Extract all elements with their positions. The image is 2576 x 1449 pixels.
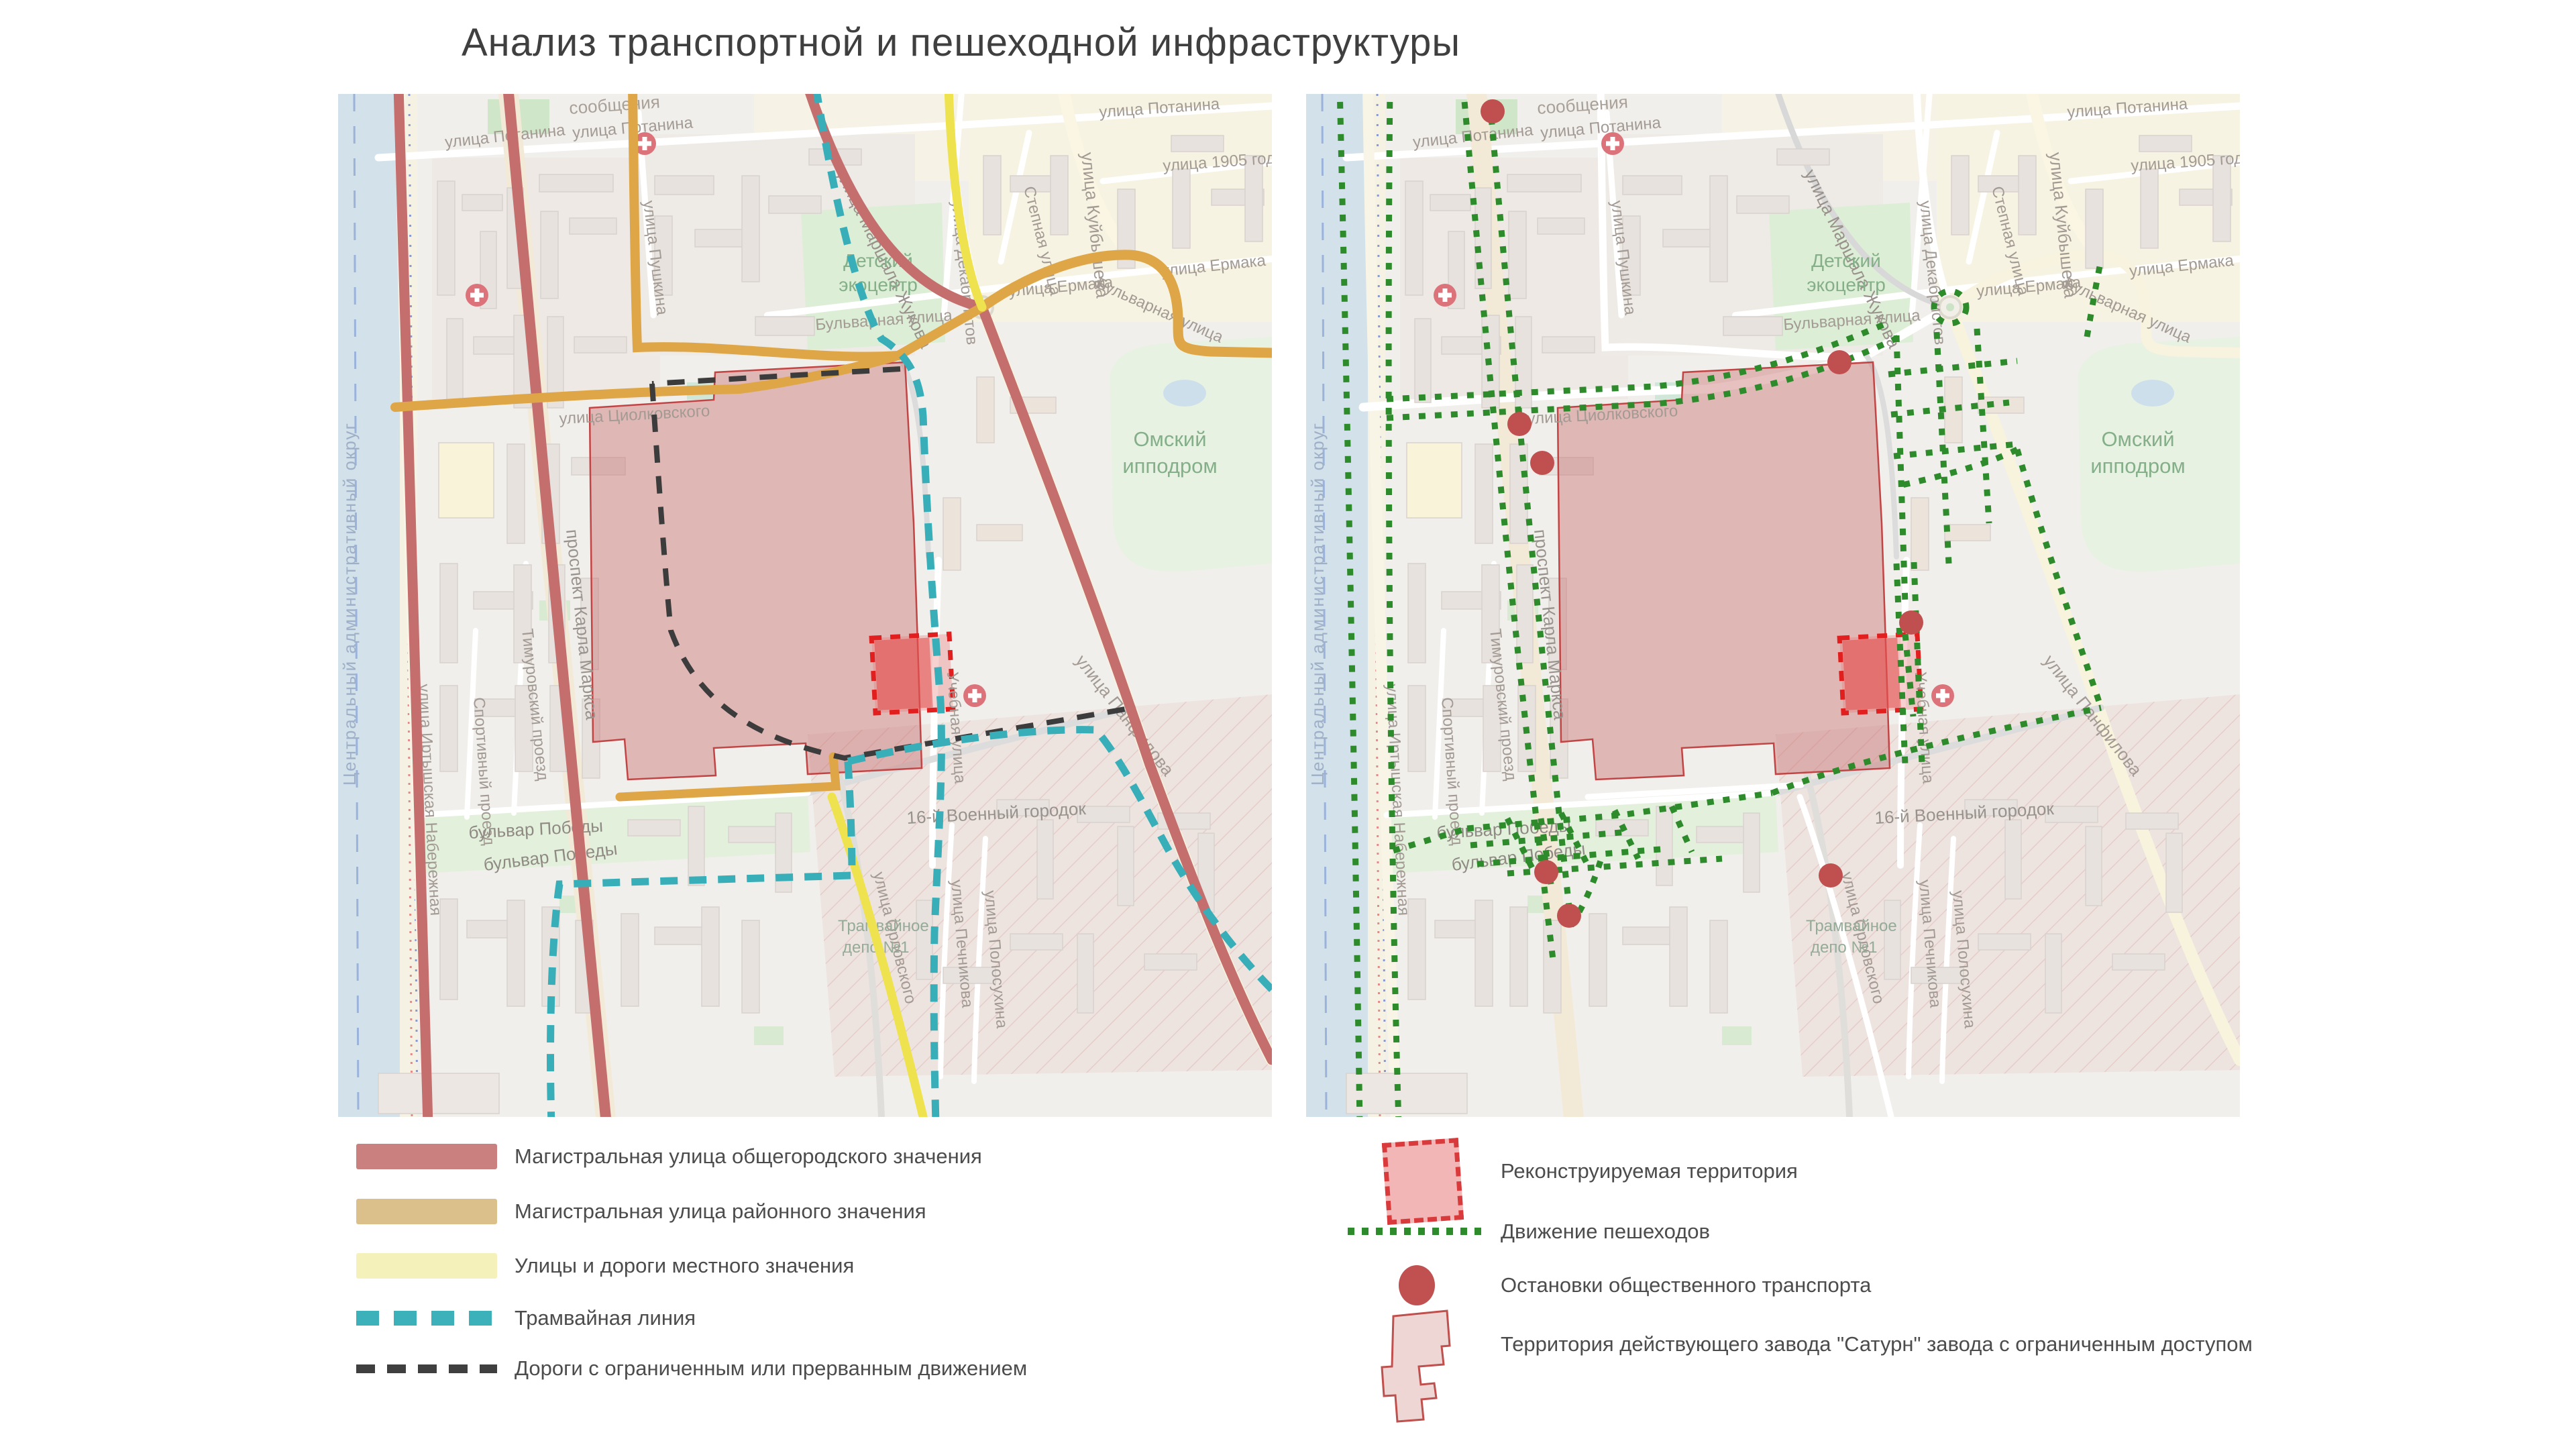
legend-item-tram: Трамвайная линия bbox=[356, 1305, 696, 1332]
stop-icon bbox=[1530, 451, 1554, 475]
factory-shape bbox=[1382, 1311, 1450, 1421]
map-transport: Центральный административный округ сообщ… bbox=[338, 94, 1272, 1117]
map-transport-svg: Центральный административный округ сообщ… bbox=[338, 94, 1272, 1117]
legend-item-city-road: Магистральная улица общегородского значе… bbox=[356, 1143, 982, 1170]
local-road-swatch bbox=[356, 1253, 497, 1279]
reconstruction-area-icon bbox=[1382, 1138, 1464, 1225]
tram-line-swatch bbox=[356, 1311, 497, 1326]
pedestrian-line-icon bbox=[1348, 1228, 1489, 1235]
stop-icon bbox=[1534, 860, 1558, 884]
legend-label: Трамвайная линия bbox=[515, 1306, 696, 1330]
legend-item-factory: Территория действующего завода "Сатурн" … bbox=[1501, 1328, 2198, 1360]
stop-icon bbox=[1557, 904, 1581, 928]
map-pedestrian bbox=[1306, 94, 2240, 1117]
legend-label: Магистральная улица районного значения bbox=[515, 1199, 926, 1224]
poster: { "title": "Анализ транспортной и пешехо… bbox=[0, 0, 2576, 1449]
stop-icon bbox=[1827, 350, 1851, 374]
legend-label: Улицы и дороги местного значения bbox=[515, 1254, 854, 1278]
stop-icon bbox=[1899, 610, 1923, 635]
legend-item-reconstruction: Реконструируемая территория bbox=[1501, 1159, 1798, 1183]
legend-label: Дороги с ограниченным или прерванным дви… bbox=[515, 1356, 1027, 1381]
stop-icon bbox=[1481, 99, 1505, 123]
factory-shape-icon bbox=[1368, 1307, 1475, 1438]
legend-item-pedestrian: Движение пешеходов bbox=[1501, 1220, 1710, 1244]
legend-label: Территория действующего завода "Сатурн" … bbox=[1501, 1328, 2198, 1360]
district-road-swatch bbox=[356, 1199, 497, 1224]
legend-label: Реконструируемая территория bbox=[1501, 1159, 1798, 1183]
city-road-swatch bbox=[356, 1144, 497, 1169]
legend-item-stops: Остановки общественного транспорта bbox=[1501, 1273, 1871, 1297]
page-title: Анализ транспортной и пешеходной инфраст… bbox=[462, 20, 1460, 65]
map-pedestrian-svg bbox=[1306, 94, 2240, 1117]
stop-icon bbox=[1507, 412, 1532, 436]
legend-item-local-road: Улицы и дороги местного значения bbox=[356, 1252, 854, 1279]
restricted-road-swatch bbox=[356, 1364, 497, 1373]
legend-item-district-road: Магистральная улица районного значения bbox=[356, 1198, 926, 1225]
legend-item-restricted: Дороги с ограниченным или прерванным дви… bbox=[356, 1355, 1027, 1382]
legend-label: Остановки общественного транспорта bbox=[1501, 1273, 1871, 1297]
legend-label: Движение пешеходов bbox=[1501, 1220, 1710, 1244]
green-dots-swatch bbox=[1348, 1228, 1489, 1235]
stop-icon bbox=[1819, 863, 1843, 888]
transit-stop-icon bbox=[1399, 1265, 1435, 1305]
legend-label: Магистральная улица общегородского значе… bbox=[515, 1144, 982, 1169]
